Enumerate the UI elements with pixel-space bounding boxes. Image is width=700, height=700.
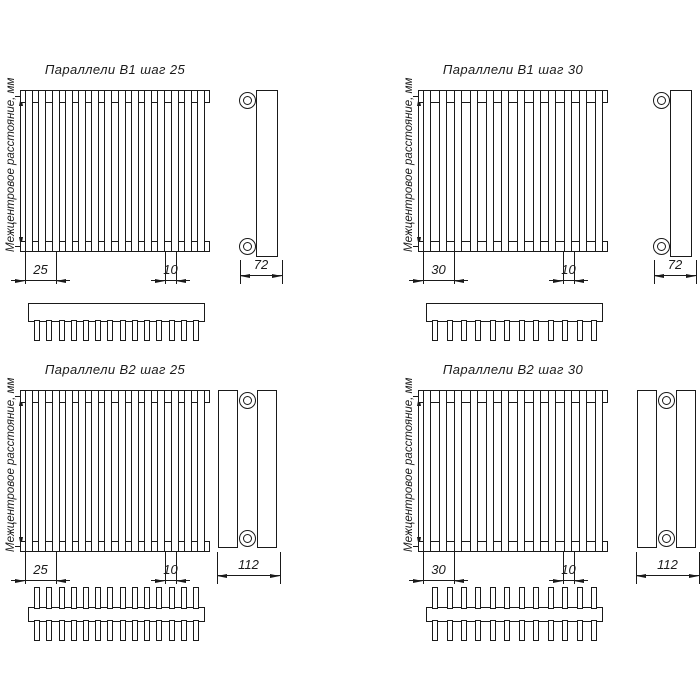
side-view-front-row — [637, 390, 657, 548]
top-view-tube — [144, 620, 150, 641]
radiator-tube — [564, 390, 572, 552]
dim-arrow — [454, 279, 464, 283]
top-view-tube-back — [181, 587, 187, 609]
top-view-tube — [46, 320, 52, 341]
center-distance-axis-label: Межцентровое расстояние, мм — [402, 90, 416, 252]
radiator-tube — [197, 390, 205, 552]
radiator-tube — [91, 390, 99, 552]
top-view-tube-back — [447, 587, 453, 609]
dim-arrow — [686, 274, 696, 278]
top-view-tube — [83, 620, 89, 641]
dim-arrow — [574, 279, 584, 283]
radiator-tube — [579, 90, 587, 252]
dim-arrow — [413, 579, 423, 583]
radiator-tube — [595, 390, 603, 552]
center-distance-dim-line — [418, 96, 419, 246]
radiator-tube — [439, 90, 447, 252]
panel-title: Параллели В2 шаг 30 — [403, 362, 623, 378]
top-view-tube — [504, 320, 510, 341]
end-gap-dimension: 10 — [555, 562, 582, 577]
top-view-tube — [562, 620, 568, 641]
dim-arrow — [15, 579, 25, 583]
dim-arrow — [240, 274, 250, 278]
panel-title: Параллели В1 шаг 30 — [403, 62, 623, 78]
radiator-tube — [486, 390, 494, 552]
radiator-tube — [470, 390, 478, 552]
top-view-tube — [591, 320, 597, 341]
pitch-dimension: 25 — [17, 562, 64, 577]
dim-arrow — [217, 574, 227, 578]
radiator-tube — [197, 90, 205, 252]
pipe-boss-inner — [243, 242, 252, 251]
center-distance-dim-line — [418, 396, 419, 546]
radiator-tube — [25, 390, 33, 552]
top-view-tube-back — [193, 587, 199, 609]
top-view-tube — [71, 620, 77, 641]
panel-title: Параллели В1 шаг 25 — [5, 62, 225, 78]
radiator-tube — [423, 90, 431, 252]
radiator-tube — [131, 90, 139, 252]
top-view-tube-back — [562, 587, 568, 609]
dim-arrow — [272, 274, 282, 278]
radiator-tube — [579, 390, 587, 552]
dim-arrow — [176, 579, 186, 583]
radiator-tube — [564, 90, 572, 252]
top-view-tube — [519, 320, 525, 341]
radiator-tube — [52, 90, 60, 252]
front-view — [423, 390, 603, 552]
top-view-tube — [591, 620, 597, 641]
top-view-tube-back — [577, 587, 583, 609]
top-view-tube-back — [461, 587, 467, 609]
top-view-tube — [490, 620, 496, 641]
top-view-tube — [533, 620, 539, 641]
top-view-tube — [132, 320, 138, 341]
pipe-boss-inner — [243, 96, 252, 105]
radiator-tube — [517, 390, 525, 552]
top-view-tube — [475, 620, 481, 641]
radiator-tube — [454, 90, 462, 252]
top-view-tube-back — [475, 587, 481, 609]
dim-arrow — [413, 279, 423, 283]
top-view-tube — [432, 620, 438, 641]
side-view-back-row — [257, 390, 277, 548]
radiator-tube — [486, 90, 494, 252]
top-collector — [20, 390, 210, 403]
top-view-tube — [144, 320, 150, 341]
pipe-boss-inner — [657, 242, 666, 251]
radiator-tube — [104, 90, 112, 252]
top-view-tube — [181, 620, 187, 641]
top-view-tube — [461, 620, 467, 641]
radiator-tube — [52, 390, 60, 552]
dim-arrow — [15, 279, 25, 283]
dim-arrow — [689, 574, 699, 578]
top-view-tube — [120, 620, 126, 641]
radiator-tube — [533, 390, 541, 552]
top-view-tube — [577, 620, 583, 641]
pipe-boss-inner — [657, 96, 666, 105]
center-distance-axis-label: Межцентровое расстояние, мм — [402, 390, 416, 552]
radiator-tube — [157, 90, 165, 252]
center-distance-dim-line — [20, 96, 21, 246]
pipe-boss-inner — [243, 534, 252, 543]
radiator-tube — [144, 390, 152, 552]
top-view-tube-back — [46, 587, 52, 609]
radiator-drawing-canvas: Параллели В1 шаг 25Межцентровое расстоян… — [0, 0, 700, 700]
top-view-tube — [461, 320, 467, 341]
dim-arrow — [155, 279, 165, 283]
radiator-tube — [104, 390, 112, 552]
top-view-tube — [193, 320, 199, 341]
radiator-tube — [65, 390, 73, 552]
radiator-tube — [118, 90, 126, 252]
top-view-tube — [562, 320, 568, 341]
top-view-tube-back — [591, 587, 597, 609]
bottom-collector — [20, 541, 210, 552]
top-view-tube — [169, 620, 175, 641]
top-view-tube — [533, 320, 539, 341]
top-view-tube-back — [132, 587, 138, 609]
depth-dimension: 112 — [209, 557, 288, 572]
radiator-tube — [171, 390, 179, 552]
top-view-tube-back — [34, 587, 40, 609]
end-gap-dimension: 10 — [555, 262, 582, 277]
top-view-tube — [107, 320, 113, 341]
dim-arrow — [636, 574, 646, 578]
end-gap-dimension: 10 — [157, 262, 184, 277]
top-view-tube-back — [156, 587, 162, 609]
radiator-tube — [184, 90, 192, 252]
top-view-collector — [28, 303, 205, 322]
side-view-body — [256, 90, 278, 257]
radiator-tube — [25, 90, 33, 252]
radiator-tube — [78, 390, 86, 552]
dim-arrow — [155, 579, 165, 583]
top-collector — [20, 90, 210, 103]
center-distance-dim-line — [20, 396, 21, 546]
top-view-tube — [447, 620, 453, 641]
dim-arrow — [654, 274, 664, 278]
radiator-tube — [171, 90, 179, 252]
top-view-tube — [59, 320, 65, 341]
top-view-tube — [120, 320, 126, 341]
depth-dimension: 112 — [628, 557, 700, 572]
dim-arrow — [553, 579, 563, 583]
radiator-tube — [131, 390, 139, 552]
top-view-tube — [447, 320, 453, 341]
center-distance-axis-label: Межцентровое расстояние, мм — [4, 390, 18, 552]
top-view-tube — [519, 620, 525, 641]
radiator-tube — [38, 90, 46, 252]
bottom-collector — [20, 241, 210, 252]
radiator-tube — [38, 390, 46, 552]
top-view-tube — [548, 320, 554, 341]
top-view-tube — [59, 620, 65, 641]
top-view-tube — [132, 620, 138, 641]
radiator-tube — [439, 390, 447, 552]
pitch-dimension: 30 — [415, 262, 462, 277]
panel-title: Параллели В2 шаг 25 — [5, 362, 225, 378]
front-view — [25, 390, 205, 552]
top-view-tube — [156, 620, 162, 641]
radiator-tube — [78, 90, 86, 252]
top-view-tube-back — [107, 587, 113, 609]
top-view-tube-back — [432, 587, 438, 609]
radiator-tube — [157, 390, 165, 552]
end-gap-dimension: 10 — [157, 562, 184, 577]
pipe-boss-inner — [662, 396, 671, 405]
radiator-tube — [454, 390, 462, 552]
dim-arrow — [553, 279, 563, 283]
radiator-tube — [65, 90, 73, 252]
top-view-tube — [193, 620, 199, 641]
pitch-dimension: 25 — [17, 262, 64, 277]
dim-arrow — [574, 579, 584, 583]
top-view-tube-back — [169, 587, 175, 609]
top-view-tube-back — [490, 587, 496, 609]
side-view-body — [670, 90, 692, 257]
dim-arrow — [56, 279, 66, 283]
top-view-tube-back — [120, 587, 126, 609]
pitch-dimension: 30 — [415, 562, 462, 577]
radiator-tube — [118, 390, 126, 552]
top-view-tube — [95, 320, 101, 341]
top-view-tube-back — [533, 587, 539, 609]
pipe-boss-inner — [243, 396, 252, 405]
top-view-tube — [156, 320, 162, 341]
radiator-tube — [548, 90, 556, 252]
top-view-tube — [34, 320, 40, 341]
radiator-tube — [184, 390, 192, 552]
top-view-tube — [83, 320, 89, 341]
front-view — [25, 90, 205, 252]
depth-dimension: 72 — [232, 257, 290, 272]
radiator-tube — [423, 390, 431, 552]
radiator-tube — [501, 90, 509, 252]
top-view-tube — [577, 320, 583, 341]
top-view-tube — [71, 320, 77, 341]
top-view-tube — [504, 620, 510, 641]
front-view — [423, 90, 603, 252]
depth-dimension: 72 — [646, 257, 700, 272]
top-view-tube-back — [548, 587, 554, 609]
top-view-tube — [548, 620, 554, 641]
top-view-tube-back — [59, 587, 65, 609]
pipe-boss-inner — [662, 534, 671, 543]
top-view-tube — [169, 320, 175, 341]
radiator-tube — [548, 390, 556, 552]
radiator-tube — [470, 90, 478, 252]
top-view-tube — [475, 320, 481, 341]
dim-arrow — [56, 579, 66, 583]
dim-arrow — [270, 574, 280, 578]
top-view-tube-back — [95, 587, 101, 609]
top-view-tube-back — [144, 587, 150, 609]
top-view-tube — [490, 320, 496, 341]
top-view-tube-back — [519, 587, 525, 609]
top-view-tube-back — [504, 587, 510, 609]
top-view-tube — [34, 620, 40, 641]
radiator-tube — [517, 90, 525, 252]
top-view-tube-back — [83, 587, 89, 609]
center-distance-axis-label: Межцентровое расстояние, мм — [4, 90, 18, 252]
radiator-tube — [595, 90, 603, 252]
radiator-tube — [501, 390, 509, 552]
radiator-tube — [91, 90, 99, 252]
top-view-tube — [432, 320, 438, 341]
top-view-tube — [95, 620, 101, 641]
dim-arrow — [454, 579, 464, 583]
top-view-tube-back — [71, 587, 77, 609]
top-view-tube — [181, 320, 187, 341]
side-view-back-row — [676, 390, 696, 548]
top-view-collector — [28, 607, 205, 622]
radiator-tube — [533, 90, 541, 252]
top-view-tube — [46, 620, 52, 641]
side-view-front-row — [218, 390, 238, 548]
radiator-tube — [144, 90, 152, 252]
top-view-tube — [107, 620, 113, 641]
dim-arrow — [176, 279, 186, 283]
